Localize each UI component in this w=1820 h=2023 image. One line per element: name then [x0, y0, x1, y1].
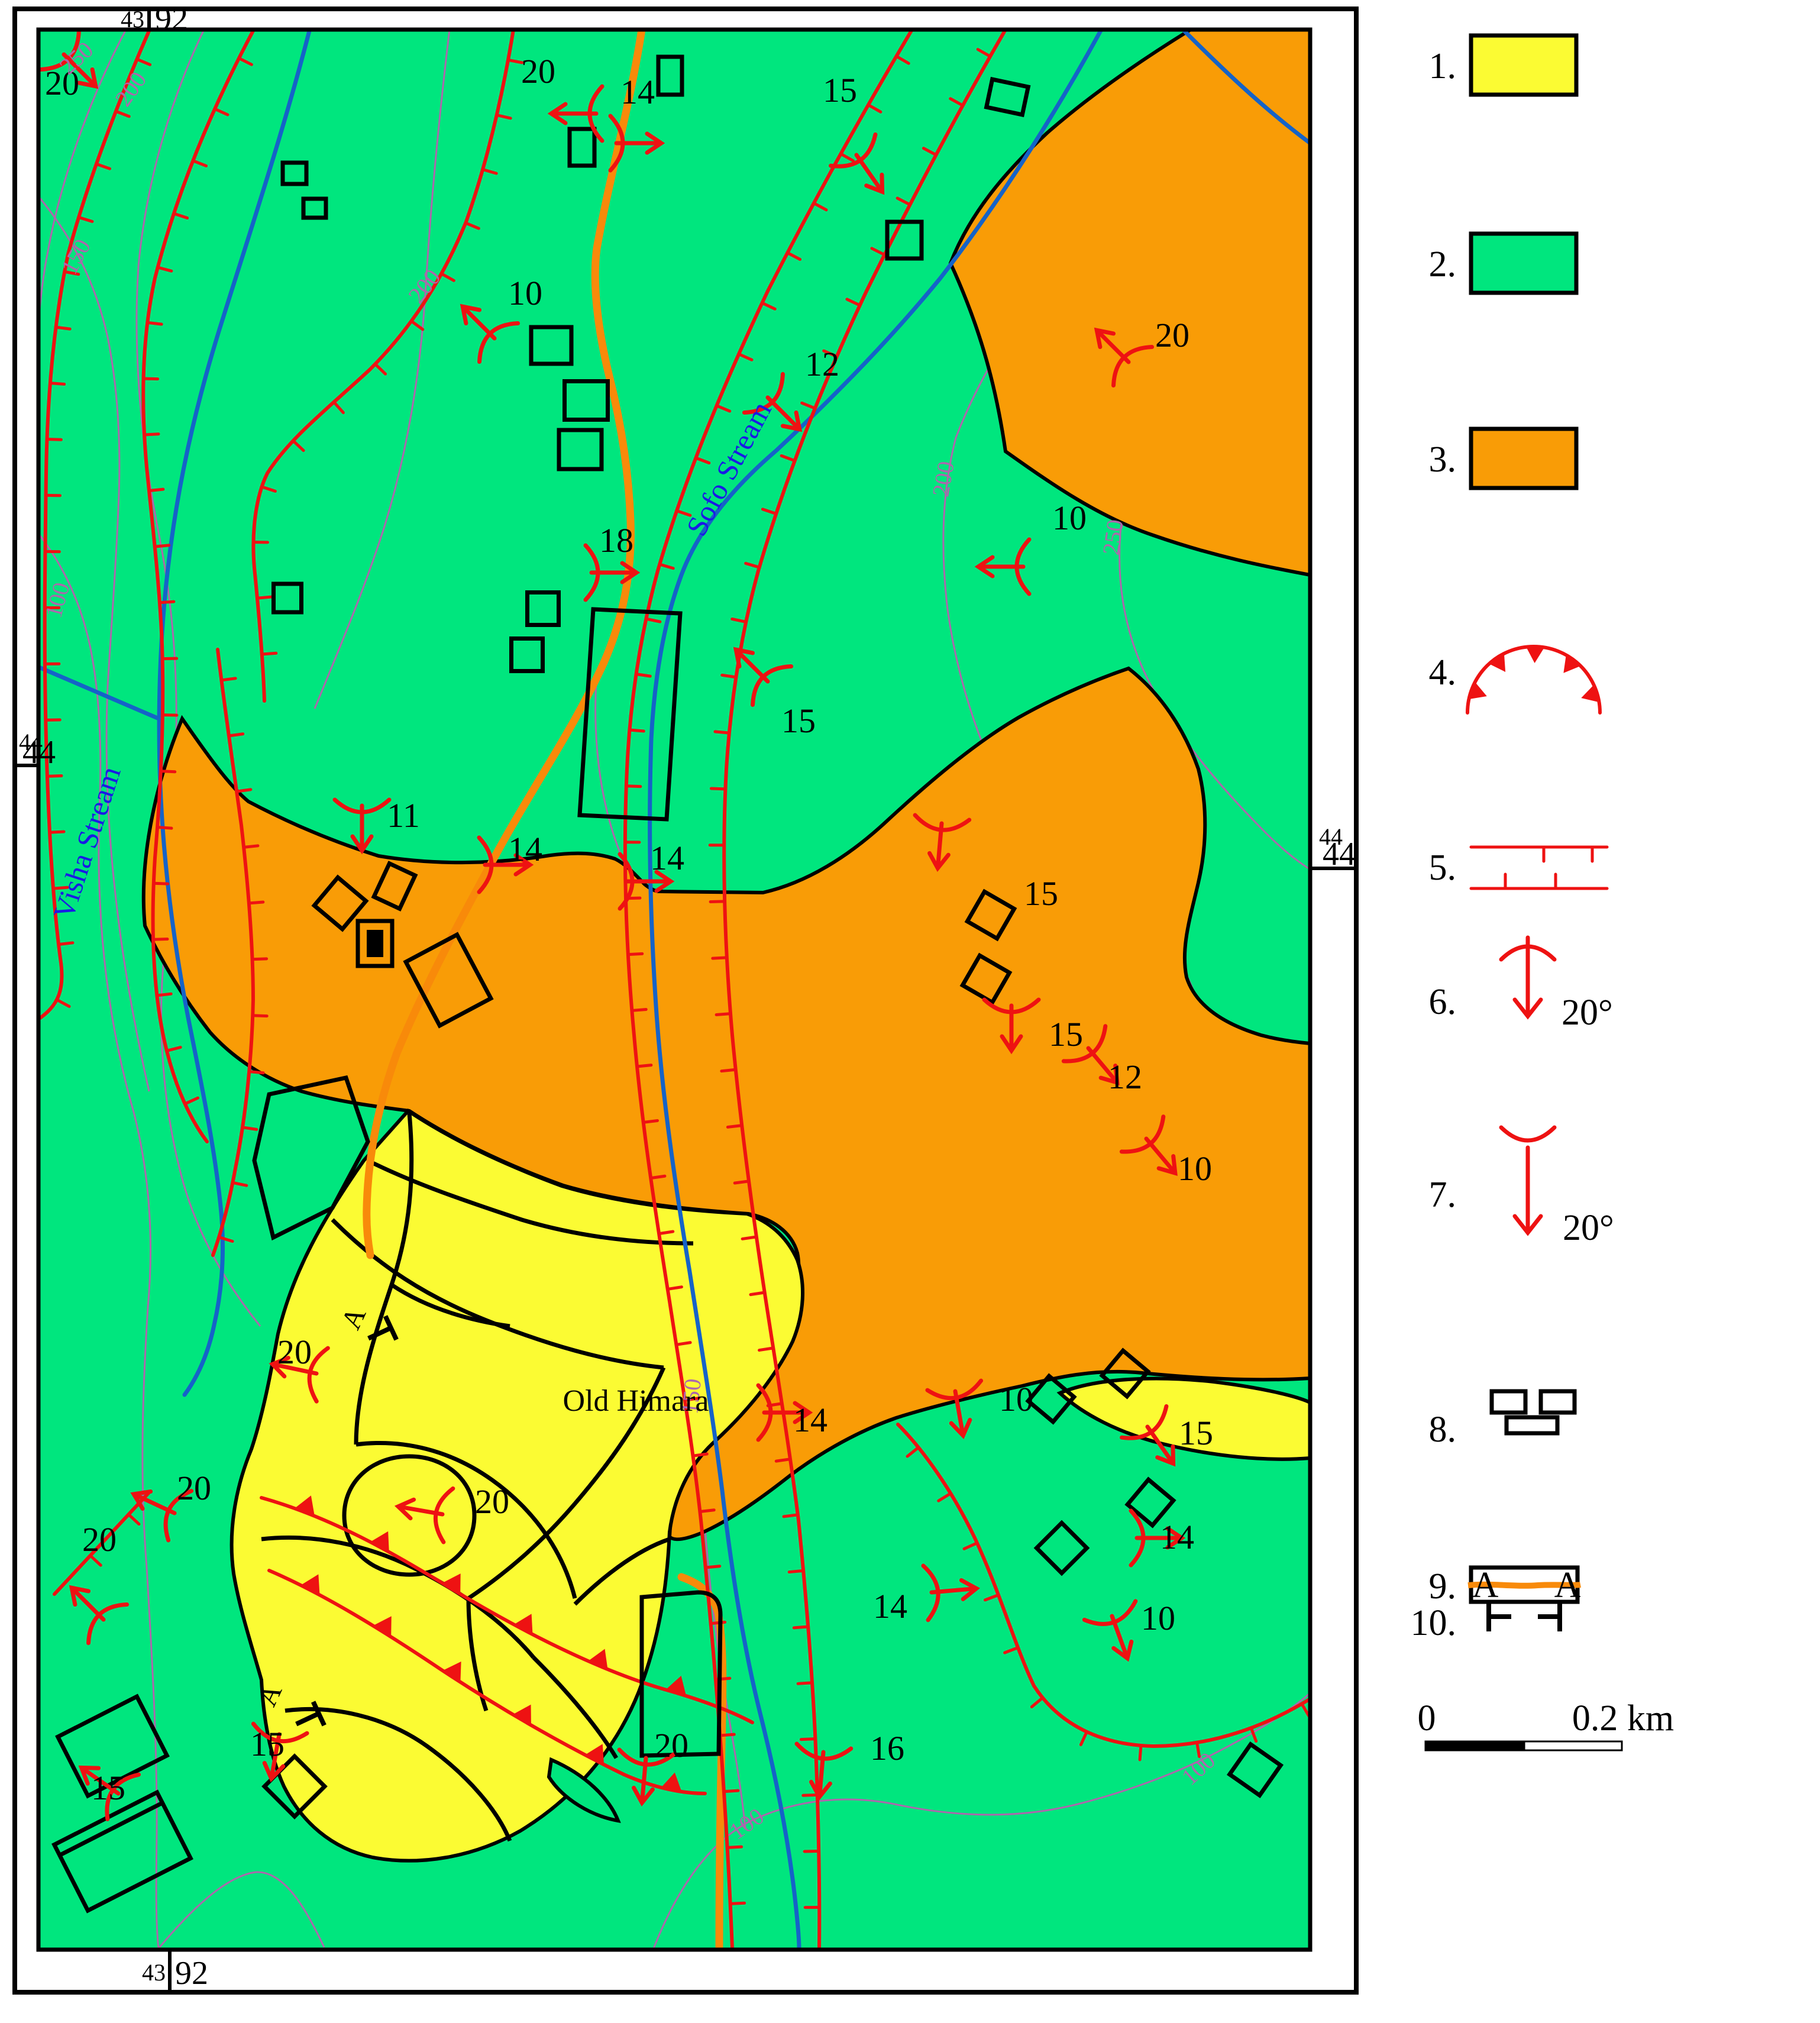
- legend-number-10: 10.: [1411, 1603, 1457, 1643]
- scarp-tick: [147, 322, 161, 324]
- dip-value-label: 10: [1141, 1599, 1175, 1637]
- scarp-tick: [720, 1734, 734, 1736]
- scarp-tick: [730, 1903, 745, 1904]
- legend-number-1: 1.: [1429, 46, 1457, 86]
- scarp-tick: [249, 902, 263, 903]
- legend-number-2: 2.: [1429, 244, 1457, 285]
- scarp-tick: [253, 959, 267, 959]
- scarp-tick: [157, 994, 171, 996]
- dip-value-label: 20: [277, 1333, 312, 1371]
- coord-top-small: 43: [121, 6, 144, 33]
- scarp-tick: [253, 1016, 267, 1016]
- scarp-tick: [711, 1622, 725, 1623]
- legend-angle-7: 20°: [1563, 1208, 1614, 1248]
- scarp-tick: [651, 1176, 665, 1178]
- scarp-tick: [784, 1515, 798, 1517]
- coord-bottom-small: 43: [142, 1959, 166, 1986]
- scarp-tick: [144, 379, 158, 379]
- legend-number-6: 6.: [1429, 982, 1457, 1022]
- scarp-tick: [1140, 1746, 1141, 1760]
- scarp-tick: [706, 1566, 720, 1568]
- legend-section-a-right: A: [1554, 1565, 1581, 1605]
- scarp-tick: [722, 1069, 736, 1071]
- scarp-tick: [153, 939, 167, 940]
- scarp-tick: [154, 883, 168, 884]
- dip-value-label: 15: [1049, 1015, 1083, 1053]
- scarp-tick: [629, 730, 644, 731]
- scarp-tick: [700, 1510, 714, 1512]
- legend-number-8: 8.: [1429, 1410, 1457, 1450]
- legend-scarp-tooth: [1581, 684, 1599, 703]
- dip-value-label: 10: [1052, 499, 1087, 537]
- dip-value-label: 11: [387, 796, 420, 835]
- scarp-tick: [157, 827, 172, 828]
- dip-value-label: 12: [805, 345, 839, 383]
- dip-value-label: 15: [1024, 874, 1058, 913]
- dip-value-label: 14: [793, 1401, 827, 1439]
- dip-value-label: 18: [599, 521, 633, 560]
- scarp-tick: [163, 658, 177, 659]
- legend-buildings-icon: [1492, 1391, 1575, 1433]
- scarp-tick: [735, 1181, 749, 1183]
- scarp-tick: [244, 846, 258, 848]
- scale-right-label: 0.2 km: [1572, 1698, 1674, 1738]
- legend-dip-symbol-6: [1501, 938, 1554, 1016]
- dip-value-label: 14: [650, 839, 684, 877]
- scarp-tick: [50, 832, 64, 832]
- scarp-tick: [713, 958, 727, 958]
- scarp-tick: [794, 1627, 808, 1628]
- map-sheet: 2020141512102010181511141415151210101514…: [15, 1, 1356, 1992]
- geomorphological-map-page: 2020141512102010181511141415151210101514…: [0, 0, 1820, 2020]
- scarp-tick: [722, 675, 736, 677]
- scarp-tick: [715, 732, 729, 733]
- legend-dip-symbol-7: [1501, 1127, 1554, 1233]
- dip-value-label: 15: [91, 1769, 125, 1807]
- dip-value-label: 15: [1179, 1414, 1213, 1452]
- scarp-tick: [144, 434, 159, 435]
- scarp-tick: [693, 1454, 707, 1456]
- dip-value-label: 14: [620, 73, 655, 111]
- dip-value-label: 14: [873, 1587, 907, 1625]
- legend-swatch-green: [1471, 234, 1576, 293]
- scarp-tick: [50, 383, 64, 384]
- dip-value-label: 20: [475, 1482, 509, 1521]
- legend-number-9: 9.: [1429, 1566, 1457, 1607]
- scarp-tick: [716, 1014, 730, 1015]
- scarp-tick: [776, 1459, 790, 1461]
- scarp-tick: [237, 790, 251, 791]
- scale-bar: 0 0.2 km: [1418, 1698, 1674, 1750]
- dip-value-label: 15: [781, 702, 816, 740]
- scarp-tick: [257, 597, 271, 598]
- scarp-tick: [249, 1072, 263, 1073]
- scarp-tick: [161, 771, 175, 772]
- map-canvas: 2020141512102010181511141415151210101514…: [0, 0, 1820, 2020]
- dip-value-label: 16: [870, 1729, 904, 1767]
- legend-number-5: 5.: [1429, 848, 1457, 888]
- scale-left-label: 0: [1418, 1698, 1436, 1738]
- coord-left-big: 44: [22, 734, 56, 771]
- scarp-tick: [46, 720, 60, 720]
- scarp-tick: [59, 943, 73, 945]
- legend-number-3: 3.: [1429, 439, 1457, 480]
- scarp-tick: [801, 1739, 815, 1740]
- scarp-tick: [628, 954, 642, 954]
- dip-value-label: 15: [823, 71, 857, 109]
- dip-value-label: 14: [1160, 1518, 1194, 1556]
- scarp-tick: [710, 901, 725, 902]
- scarp-tick: [243, 1127, 257, 1130]
- legend-number-4: 4.: [1429, 652, 1457, 693]
- dip-value-label: 12: [1108, 1058, 1142, 1096]
- scale-bar-white-half: [1524, 1741, 1622, 1750]
- scarp-tick: [742, 1237, 757, 1239]
- scarp-tick: [221, 678, 235, 680]
- scarp-tick: [789, 1570, 803, 1572]
- legend-paired-scarps-icon: [1471, 847, 1607, 888]
- dip-value-label: 10: [1178, 1149, 1212, 1188]
- scarp-tick: [632, 1009, 646, 1010]
- legend-section-a-left: A: [1472, 1565, 1499, 1605]
- scarp-tick: [229, 734, 243, 736]
- coord-bottom-big: 92: [175, 1955, 208, 1992]
- legend-section-endpoints-icon: A A: [1472, 1565, 1581, 1631]
- scarp-tick: [636, 674, 651, 677]
- legend-swatch-yellow: [1471, 35, 1576, 95]
- scarp-tick: [803, 1795, 817, 1796]
- scale-bar-black-half: [1425, 1741, 1524, 1750]
- scarp-tick: [149, 489, 163, 490]
- legend-number-7: 7.: [1429, 1175, 1457, 1215]
- scarp-tick: [798, 1683, 812, 1684]
- place-label-old-himara: Old Himara: [563, 1384, 709, 1418]
- scarp-tick: [262, 653, 276, 654]
- scarp-tick: [626, 786, 641, 787]
- dip-value-label: 20: [521, 52, 555, 91]
- map-area: 2020141512102010181511141415151210101514…: [37, 30, 1310, 1950]
- coord-right-big: 44: [1323, 836, 1356, 872]
- dip-value-label: 10: [508, 274, 542, 312]
- scarp-tick: [711, 788, 725, 789]
- scarp-tick: [644, 1120, 658, 1122]
- scarp-tick: [728, 1847, 742, 1847]
- legend-scarp-tooth: [1526, 646, 1545, 663]
- dip-value-label: 20: [82, 1520, 117, 1559]
- scarp-tick: [160, 602, 174, 603]
- legend-angle-6: 20°: [1562, 993, 1613, 1033]
- dip-value-label: 20: [1155, 316, 1189, 354]
- coord-top-big: 92: [155, 1, 188, 37]
- legend-swatch-orange: [1471, 429, 1576, 488]
- dip-value-label: 10: [999, 1380, 1033, 1418]
- dip-value-label: 20: [177, 1469, 211, 1507]
- scarp-tick: [728, 1126, 742, 1127]
- scarp-tick: [56, 327, 70, 329]
- contour-label: 250: [1097, 518, 1129, 557]
- dip-value-label: 15: [250, 1725, 285, 1763]
- scarp-tick: [155, 545, 169, 547]
- scarp-tick: [637, 1065, 651, 1067]
- dip-value-label: 20: [654, 1726, 688, 1765]
- dip-value-label: 14: [508, 830, 542, 868]
- scarp-tick: [724, 1791, 738, 1792]
- scarp-tick: [47, 439, 61, 439]
- legend: 1. 2. 3. 4. 5. 6. 20° 7. 20°: [1411, 35, 1674, 1750]
- scarp-tick: [47, 776, 62, 777]
